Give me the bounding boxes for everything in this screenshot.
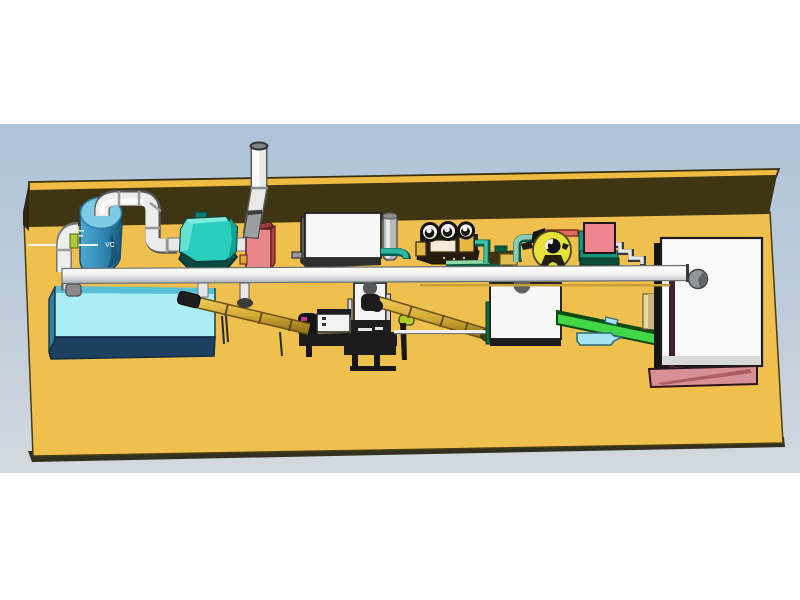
svg-text:VC: VC	[105, 242, 115, 249]
